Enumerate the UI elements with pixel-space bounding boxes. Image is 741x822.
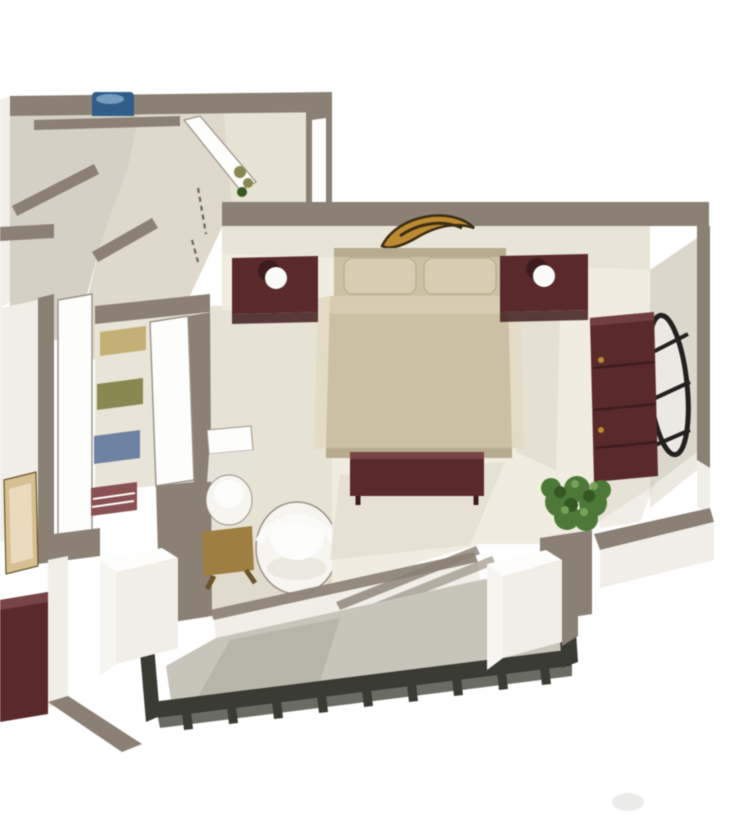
- table-lamp-left: [265, 267, 287, 289]
- washing-machine-lid: [96, 94, 124, 104]
- nightstand-right-base: [500, 310, 588, 322]
- planter-right-band: [562, 552, 578, 646]
- faint-smudge: [612, 793, 644, 811]
- plant-foliage-dark: [583, 490, 595, 502]
- maroon-furniture: [0, 592, 48, 722]
- plant-foliage-light: [571, 480, 579, 488]
- pillow-left: [344, 258, 416, 294]
- inner-wall-band: [0, 224, 54, 241]
- plant-foliage-light: [561, 506, 569, 514]
- nightstand-left-base: [232, 312, 318, 324]
- bed-duvet: [326, 296, 512, 448]
- planter-right-side: [487, 564, 503, 670]
- hall-end-door: [58, 294, 92, 544]
- white-wall-strip: [48, 556, 68, 708]
- floor-plan-svg: [0, 0, 741, 822]
- plant-foliage-dark: [554, 486, 566, 498]
- closet-door: [150, 316, 194, 486]
- foot-bench-top: [350, 452, 484, 459]
- lower-left-wall-band: [38, 294, 54, 546]
- dresser-knob: [598, 427, 604, 433]
- left-outer-wall: [0, 96, 10, 308]
- wall-picture-art: [9, 483, 33, 564]
- dresser-knob: [598, 357, 604, 363]
- pillow-right: [424, 258, 496, 294]
- toilet-lid: [214, 480, 244, 508]
- planter-right-front: [503, 560, 562, 658]
- bed-sheet-fold: [330, 296, 508, 314]
- right-wall-base: [697, 460, 710, 514]
- right-wall-outer-band: [697, 226, 710, 468]
- planter-left-side: [100, 560, 116, 676]
- leaf: [237, 187, 247, 197]
- floor-plan-image: [0, 0, 741, 822]
- wall-door-panel: [312, 118, 326, 206]
- table-lamp-right: [533, 265, 555, 287]
- wooden-stool: [202, 526, 254, 576]
- shelf-clothes-blue: [94, 430, 140, 464]
- plant-foliage-light: [590, 482, 598, 490]
- planter-left-front: [116, 558, 178, 664]
- plant-foliage-light: [580, 508, 588, 516]
- leaf: [234, 166, 246, 178]
- leaf: [243, 178, 253, 188]
- top-wall-band: [10, 92, 332, 116]
- toilet-tank: [207, 426, 253, 454]
- dresser: [590, 312, 658, 482]
- bed-headboard-edge: [334, 248, 506, 257]
